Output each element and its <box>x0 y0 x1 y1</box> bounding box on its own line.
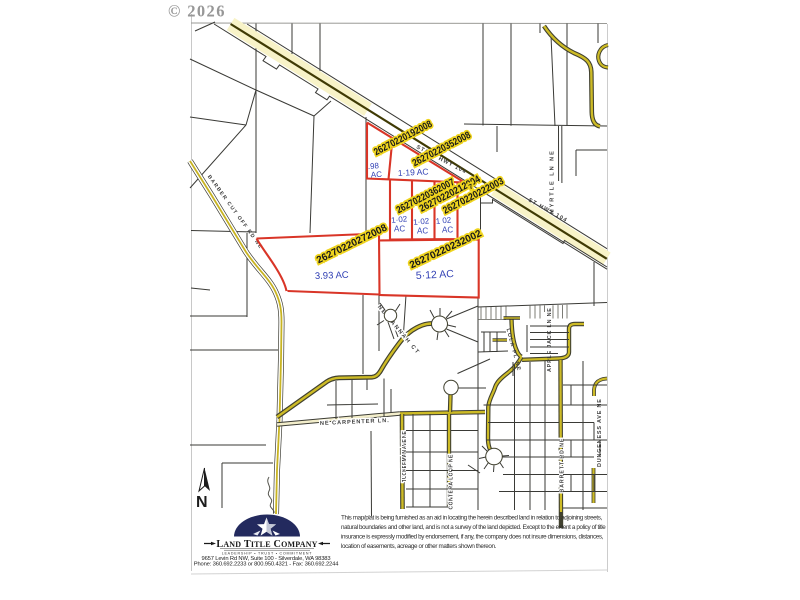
svg-text:3.93 AC: 3.93 AC <box>315 270 349 282</box>
svg-text:CONTERA LOOP NE: CONTERA LOOP NE <box>449 454 455 510</box>
svg-text:insurance is expressly modifie: insurance is expressly modified by endor… <box>341 534 604 541</box>
svg-text:TUCKERMAN AVE NE: TUCKERMAN AVE NE <box>402 430 408 482</box>
svg-text:Phone: 360.692.2233 or 800.950: Phone: 360.692.2233 or 800.950.4321 - Fa… <box>194 561 339 567</box>
svg-text:BARRETT RD NE: BARRETT RD NE <box>560 438 566 493</box>
svg-text:location of easements, acreage: location of easements, acreage or other … <box>341 543 497 550</box>
svg-text:1·02: 1·02 <box>413 216 430 227</box>
svg-text:N: N <box>196 494 208 511</box>
svg-text:AC: AC <box>442 226 453 235</box>
svg-text:MYRTLE LN NE: MYRTLE LN NE <box>550 150 556 214</box>
svg-text:AC: AC <box>394 225 405 234</box>
svg-text:1·19 AC: 1·19 AC <box>398 166 429 178</box>
svg-text:This map/plat is being furnish: This map/plat is being furnished as an a… <box>341 515 602 522</box>
svg-text:natural boundaries and other l: natural boundaries and other land, and i… <box>341 524 606 531</box>
svg-text:AC: AC <box>417 227 428 236</box>
svg-text:5·12 AC: 5·12 AC <box>416 268 455 282</box>
svg-text:LEADERSHIP • TRUST • COMMITMEN: LEADERSHIP • TRUST • COMMITMENT <box>222 551 313 555</box>
svg-text:© 2026: © 2026 <box>168 2 226 21</box>
svg-text:AC: AC <box>371 170 383 180</box>
svg-text:1 02: 1 02 <box>435 215 452 226</box>
